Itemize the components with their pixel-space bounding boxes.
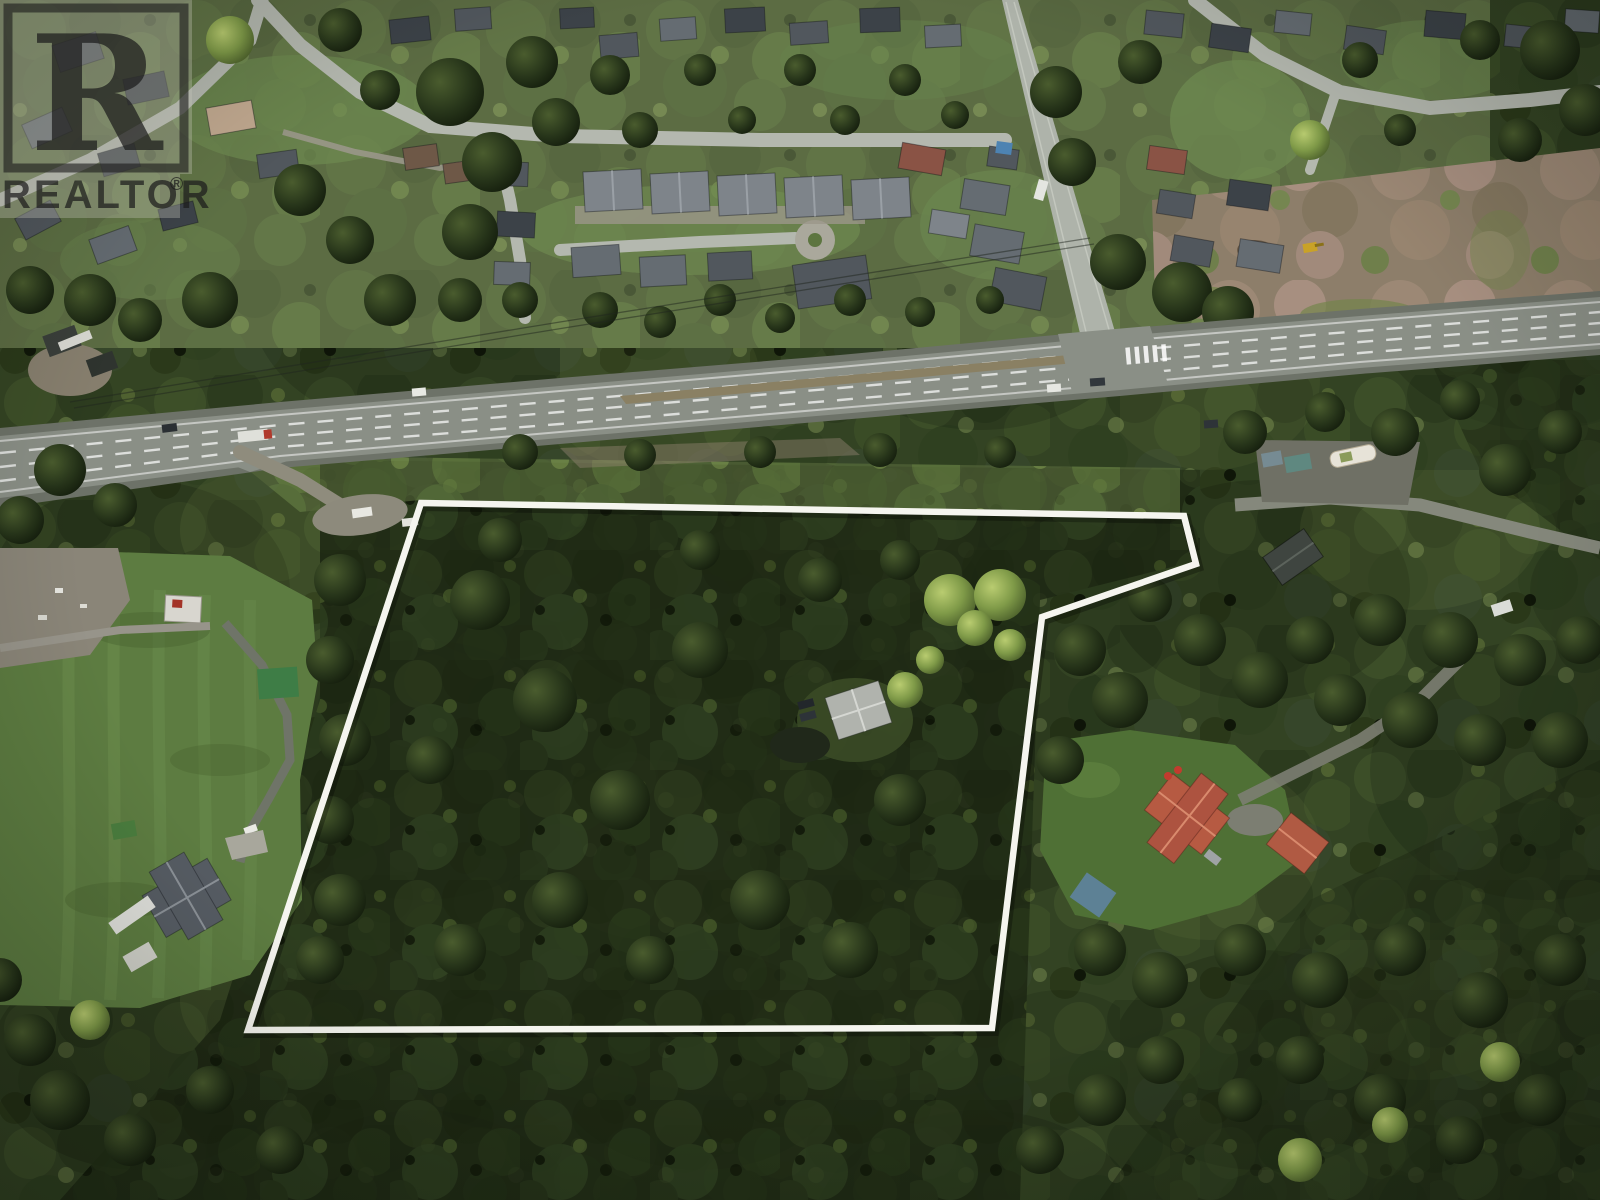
aerial-photo: R REALTOR ® — [0, 0, 1600, 1200]
vignette — [0, 0, 1600, 1200]
aerial-photo-canvas: R REALTOR ® — [0, 0, 1600, 1200]
registered-trademark-symbol: ® — [170, 174, 186, 194]
realtor-logo-r: R — [30, 0, 164, 188]
realtor-watermark: R REALTOR ® — [0, 0, 213, 218]
